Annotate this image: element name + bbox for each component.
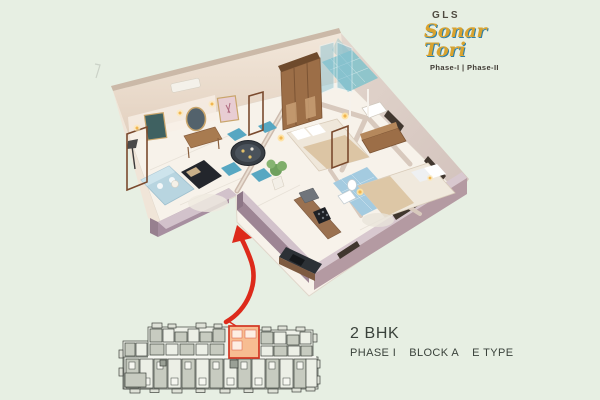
unit-type-label: 2 BHK	[350, 325, 526, 343]
location-arrow-icon	[226, 225, 253, 322]
rug	[362, 213, 394, 227]
toilet	[348, 180, 357, 191]
unit-details: PHASE IBLOCK AE TYPE	[350, 347, 526, 359]
floor-plan-3d	[111, 28, 469, 296]
unit-block: BLOCK A	[409, 347, 459, 359]
logo-name: Sonar Tori	[424, 22, 534, 60]
project-logo: GLS Sonar Tori Phase-I | Phase-II	[424, 10, 534, 72]
stray-mark	[95, 64, 100, 78]
brochure-page: GLS Sonar Tori Phase-I | Phase-II 2 BHK …	[0, 0, 600, 400]
key-plan	[119, 321, 320, 393]
table-lamp	[172, 181, 179, 188]
unit-phase: PHASE I	[350, 347, 396, 359]
unit-plan-type: E TYPE	[472, 347, 513, 359]
unit-info: 2 BHK PHASE IBLOCK AE TYPE	[350, 325, 526, 359]
highlighted-unit	[228, 321, 259, 358]
round-mirror	[187, 108, 206, 131]
logo-phases: Phase-I | Phase-II	[430, 63, 534, 72]
shower-glass	[320, 42, 334, 94]
shower-glass	[337, 42, 352, 92]
rug	[188, 194, 228, 212]
